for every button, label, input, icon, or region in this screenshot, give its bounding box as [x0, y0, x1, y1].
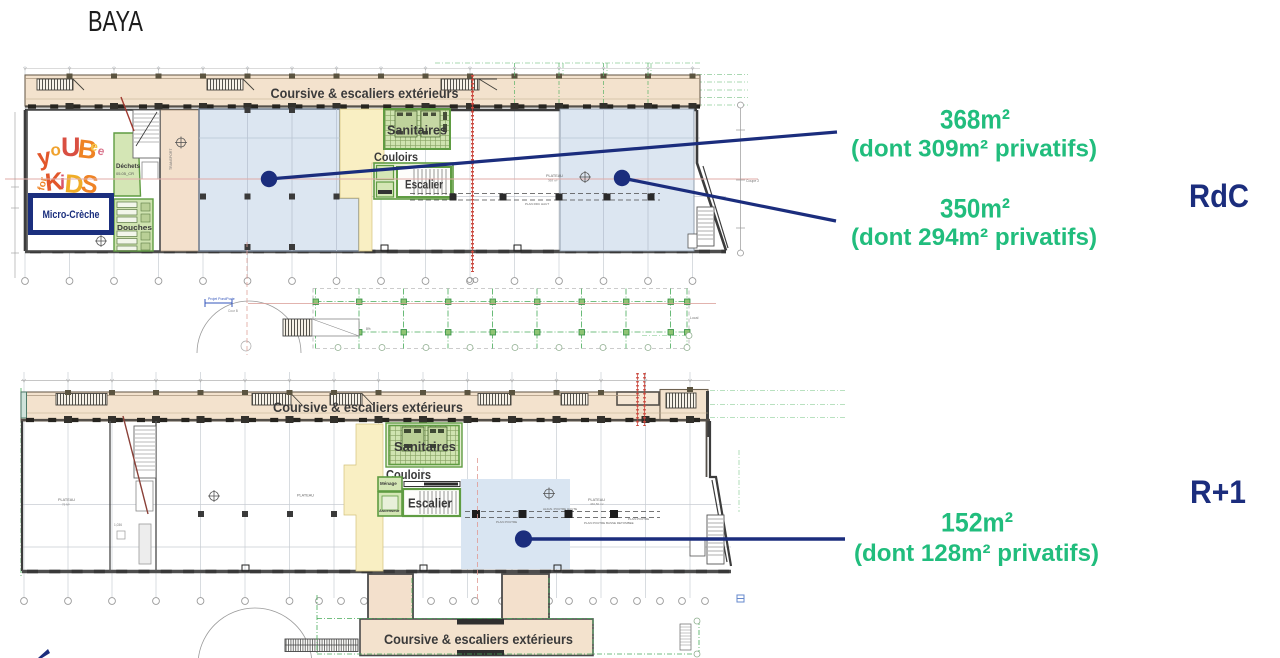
- svg-text:Micro-Crèche: Micro-Crèche: [43, 209, 100, 221]
- svg-text:(dont 294m² privatifs): (dont 294m² privatifs): [851, 224, 1097, 251]
- svg-text:PLAN POUTRE BASSE RETOMBEE: PLAN POUTRE BASSE RETOMBEE: [584, 521, 634, 525]
- svg-text:PLATEAU: PLATEAU: [58, 498, 75, 502]
- svg-text:Cour B: Cour B: [228, 309, 238, 313]
- svg-text:Couloirs: Couloirs: [374, 150, 418, 164]
- svg-text:Coursive & escaliers extérieur: Coursive & escaliers extérieurs: [273, 400, 463, 415]
- svg-text:Coursive & escaliers extérieur: Coursive & escaliers extérieurs: [271, 86, 459, 101]
- svg-text:PLAN POUTRE: PLAN POUTRE: [496, 520, 517, 524]
- svg-text:Escalier: Escalier: [408, 496, 452, 511]
- svg-text:368 m²: 368 m²: [548, 179, 557, 183]
- svg-text:75 M²: 75 M²: [62, 503, 70, 507]
- svg-text:Coursive & escaliers extérieur: Coursive & escaliers extérieurs: [384, 632, 573, 647]
- svg-text:TRANSPORT: TRANSPORT: [169, 148, 173, 170]
- svg-text:PLATEAU: PLATEAU: [297, 494, 314, 498]
- svg-text:PLATEAU: PLATEAU: [546, 174, 563, 178]
- svg-text:460,50 m²: 460,50 m²: [590, 502, 604, 506]
- svg-text:350m²: 350m²: [940, 194, 1010, 224]
- svg-text:R+1: R+1: [1190, 474, 1246, 510]
- svg-text:Sanitaires: Sanitaires: [394, 439, 456, 454]
- svg-text:Projet PondPorte: Projet PondPorte: [208, 297, 235, 301]
- svg-text:Escalier: Escalier: [405, 178, 443, 192]
- svg-text:368m²: 368m²: [940, 105, 1010, 135]
- svg-text:Ménage: Ménage: [380, 481, 397, 486]
- svg-text:RdC: RdC: [1189, 178, 1249, 214]
- svg-text:Sanitaires: Sanitaires: [387, 124, 447, 138]
- svg-text:PLAN POUTRE: PLAN POUTRE: [628, 517, 649, 521]
- svg-text:Local: Local: [690, 316, 699, 320]
- svg-text:(dont 128m² privatifs): (dont 128m² privatifs): [854, 540, 1099, 567]
- svg-text:BAYA: BAYA: [88, 6, 143, 38]
- svg-text:PLAN RDC HAUT: PLAN RDC HAUT: [525, 202, 549, 206]
- svg-text:8%: 8%: [366, 327, 371, 331]
- svg-text:o: o: [49, 140, 61, 160]
- svg-text:Douches: Douches: [117, 225, 152, 232]
- svg-text:Déchets: Déchets: [116, 163, 140, 170]
- svg-text:152m²: 152m²: [941, 508, 1013, 538]
- svg-text:05.05_CR: 05.05_CR: [116, 171, 134, 176]
- svg-text:(dont 309m² privatifs): (dont 309m² privatifs): [851, 136, 1097, 163]
- svg-text:Ascenseur: Ascenseur: [379, 508, 400, 513]
- svg-text:1,036: 1,036: [114, 523, 122, 527]
- svg-text:ALIGN. POUTRE HAUTE: ALIGN. POUTRE HAUTE: [543, 507, 577, 511]
- svg-text:Coupe 2: Coupe 2: [746, 179, 759, 183]
